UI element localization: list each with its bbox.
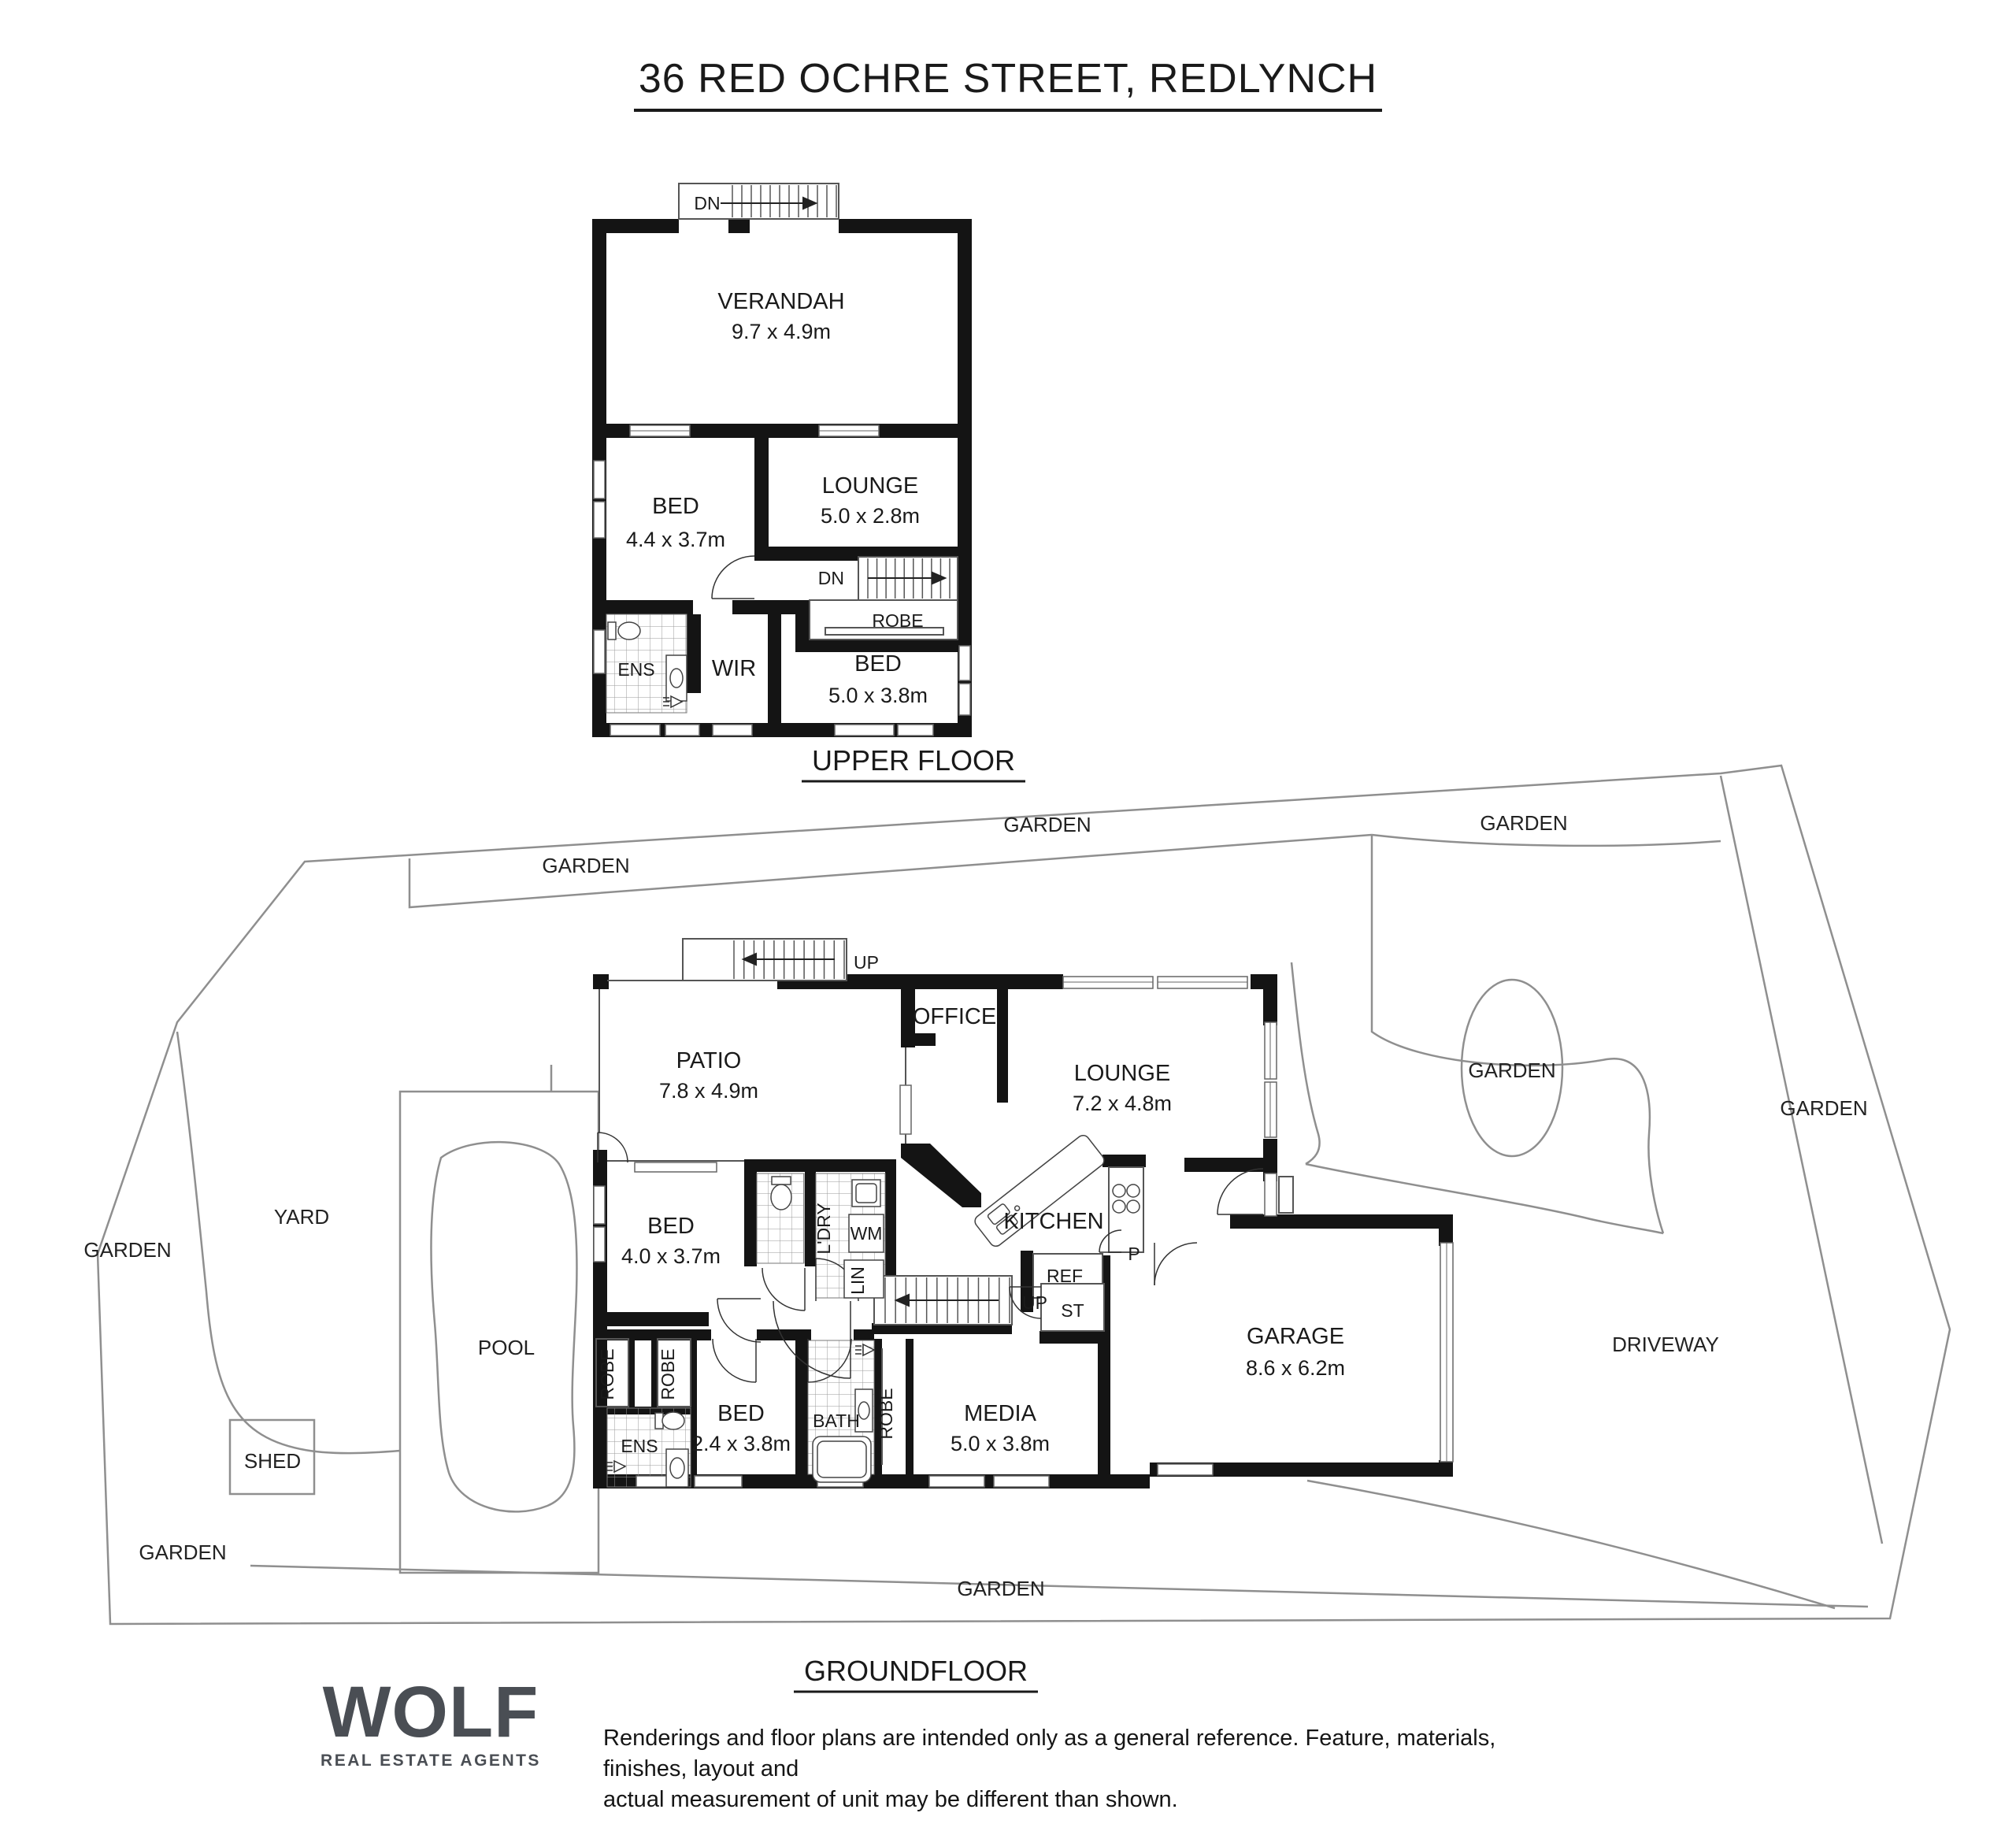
room-lounge-ground: LOUNGE	[1074, 1061, 1170, 1086]
ens-ground-label: ENS	[621, 1436, 658, 1456]
wm-label: WM	[850, 1223, 883, 1244]
linen-label: LIN	[847, 1266, 868, 1295]
garden-label-6: GARDEN	[83, 1238, 171, 1262]
toilet-tank	[608, 622, 616, 640]
disclaimer-text: Renderings and floor plans are intended …	[603, 1723, 1548, 1815]
store-label: ST	[1061, 1300, 1084, 1321]
stair-dn-label: DN	[694, 193, 720, 213]
room-bed4-dims: 2.4 x 3.8m	[691, 1432, 791, 1455]
logo-wordmark: WOLF	[309, 1676, 553, 1748]
room-verandah: VERANDAH	[717, 289, 844, 314]
ens-upper-label: ENS	[617, 659, 654, 680]
toilet-bowl	[618, 622, 640, 640]
room-lounge-upper: LOUNGE	[822, 473, 918, 499]
room-office: OFFICE	[913, 1004, 996, 1029]
garden-label-3: GARDEN	[1480, 811, 1567, 835]
fridge-label: REF	[1047, 1266, 1083, 1286]
stair-up2-label: UP	[1022, 1292, 1047, 1313]
room-lounge-upper-dims: 5.0 x 2.8m	[821, 504, 920, 528]
room-patio-dims: 7.8 x 4.9m	[659, 1079, 758, 1103]
room-bed3: BED	[647, 1214, 695, 1239]
robe-upper-label: ROBE	[872, 610, 923, 631]
robe3-label: ROBE	[876, 1388, 896, 1439]
disclaimer-line-2: actual measurement of unit may be differ…	[603, 1785, 1548, 1815]
room-bed1: BED	[652, 494, 699, 519]
room-lounge-ground-dims: 7.2 x 4.8m	[1073, 1092, 1172, 1115]
room-patio: PATIO	[676, 1048, 742, 1073]
driveway-label: DRIVEWAY	[1612, 1333, 1719, 1356]
disclaimer-line-1: Renderings and floor plans are intended …	[603, 1723, 1548, 1785]
room-bed2: BED	[854, 651, 902, 677]
room-garage: GARAGE	[1247, 1324, 1344, 1349]
room-media: MEDIA	[964, 1401, 1037, 1426]
room-bed4: BED	[717, 1401, 765, 1426]
upper-floor-title: UPPER FLOOR	[812, 744, 1015, 777]
garden-label-1: GARDEN	[542, 854, 629, 877]
agency-logo: WOLF REAL ESTATE AGENTS	[309, 1676, 553, 1770]
room-garage-dims: 8.6 x 6.2m	[1246, 1356, 1345, 1380]
pool-label: POOL	[478, 1336, 535, 1359]
thin-outlines	[596, 184, 1293, 1465]
stair-up-label: UP	[854, 952, 879, 973]
shed-label: SHED	[244, 1449, 301, 1473]
room-verandah-dims: 9.7 x 4.9m	[732, 320, 831, 343]
garden-label-4: GARDEN	[1468, 1058, 1555, 1082]
yard-label: YARD	[274, 1205, 329, 1229]
garden-label-2: GARDEN	[1003, 813, 1091, 836]
ground-floor-title: GROUNDFLOOR	[804, 1655, 1028, 1687]
garden-label-5: GARDEN	[1780, 1096, 1867, 1120]
garden-label-7: GARDEN	[139, 1540, 226, 1564]
bath-label: BATH	[813, 1411, 860, 1431]
room-media-dims: 5.0 x 3.8m	[951, 1432, 1050, 1455]
robe1-label: ROBE	[597, 1348, 617, 1400]
logo-tagline: REAL ESTATE AGENTS	[309, 1752, 553, 1770]
room-bed1-dims: 4.4 x 3.7m	[626, 528, 725, 551]
wir-label: WIR	[712, 656, 756, 681]
laundry-label: L'DRY	[813, 1203, 834, 1254]
garden-label-8: GARDEN	[957, 1577, 1044, 1600]
room-bed3-dims: 4.0 x 3.7m	[621, 1244, 721, 1268]
room-bed2-dims: 5.0 x 3.8m	[828, 684, 928, 707]
room-kitchen: KITCHEN	[1003, 1209, 1103, 1234]
pantry-label: P	[1128, 1244, 1140, 1264]
stair-dn2-label: DN	[818, 568, 844, 588]
robe2-label: ROBE	[658, 1348, 678, 1400]
floorplan-drawing: DN VERANDAH 9.7 x 4.9m BED 4.4 x 3.7m LO…	[0, 0, 2016, 1824]
floorplan-page: 36 RED OCHRE STREET, REDLYNCH	[0, 0, 2016, 1824]
